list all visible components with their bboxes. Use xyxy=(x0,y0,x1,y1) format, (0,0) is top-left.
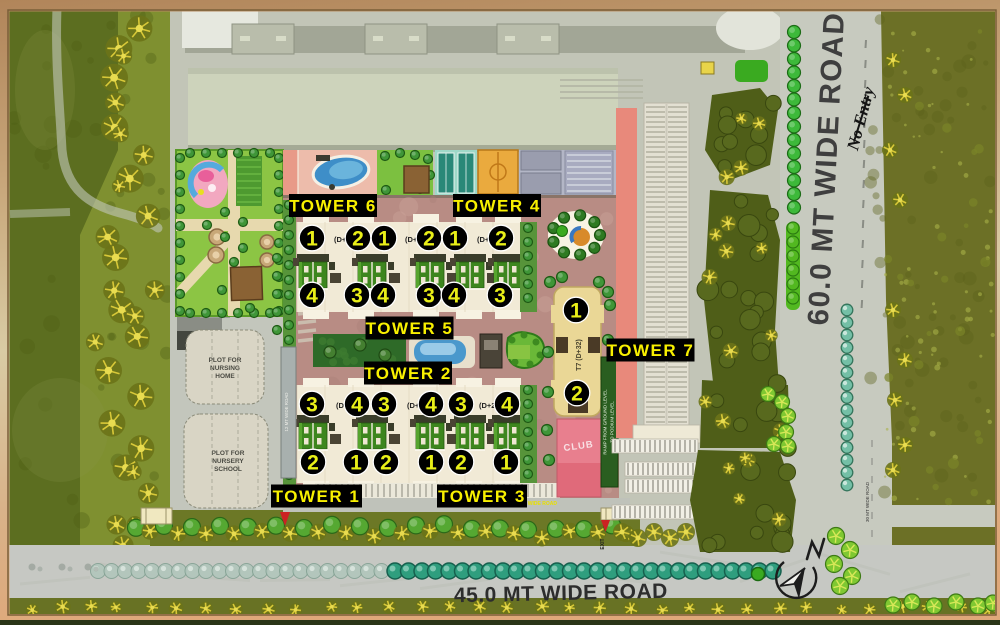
svg-text:TOWER 3: TOWER 3 xyxy=(438,487,526,506)
svg-text:TO PODIUM LEVEL: TO PODIUM LEVEL xyxy=(610,401,615,443)
svg-text:1: 1 xyxy=(500,452,512,475)
svg-text:TOWER 5: TOWER 5 xyxy=(366,319,454,338)
svg-text:2: 2 xyxy=(352,228,364,251)
svg-text:NURSERY: NURSERY xyxy=(212,458,244,465)
svg-text:3: 3 xyxy=(455,394,467,417)
svg-text:PLOT FOR: PLOT FOR xyxy=(209,357,242,364)
svg-text:4: 4 xyxy=(501,394,513,417)
svg-text:1: 1 xyxy=(449,228,461,251)
svg-text:TOWER 2: TOWER 2 xyxy=(364,364,452,383)
svg-text:1: 1 xyxy=(306,228,318,251)
svg-text:2: 2 xyxy=(307,452,319,475)
svg-text:1: 1 xyxy=(378,228,390,251)
svg-text:TOWER 4: TOWER 4 xyxy=(453,196,541,215)
svg-text:TOWER 7: TOWER 7 xyxy=(607,341,695,360)
svg-text:2: 2 xyxy=(571,383,583,406)
svg-text:12 MT WIDE ROAD: 12 MT WIDE ROAD xyxy=(284,393,289,432)
svg-text:NURSING: NURSING xyxy=(210,365,240,372)
svg-text:3: 3 xyxy=(423,285,435,308)
svg-text:TOWER 1: TOWER 1 xyxy=(273,487,361,506)
svg-text:2: 2 xyxy=(455,452,467,475)
svg-text:(D+2: (D+2 xyxy=(479,401,495,410)
svg-text:3: 3 xyxy=(306,394,318,417)
svg-text:1: 1 xyxy=(425,452,437,475)
svg-text:45.0 MT WIDE ROAD: 45.0 MT WIDE ROAD xyxy=(454,580,668,607)
svg-text:1: 1 xyxy=(350,452,362,475)
svg-text:HOME: HOME xyxy=(215,373,235,380)
svg-text:TOWER 6: TOWER 6 xyxy=(289,196,377,215)
svg-text:EXIT: EXIT xyxy=(600,538,606,549)
svg-text:4: 4 xyxy=(377,285,389,308)
svg-text:RAMP FROM GROUND LEVEL: RAMP FROM GROUND LEVEL xyxy=(603,389,608,455)
svg-text:2: 2 xyxy=(423,228,435,251)
svg-text:4: 4 xyxy=(448,285,460,308)
svg-text:PLOT FOR: PLOT FOR xyxy=(212,450,245,457)
svg-text:T7 (D+32): T7 (D+32) xyxy=(576,339,583,371)
svg-text:2: 2 xyxy=(495,228,507,251)
svg-text:30 MT WIDE ROAD: 30 MT WIDE ROAD xyxy=(865,481,870,522)
svg-text:4: 4 xyxy=(425,394,437,417)
svg-text:1: 1 xyxy=(570,300,582,323)
svg-text:3: 3 xyxy=(494,285,506,308)
svg-text:4: 4 xyxy=(351,394,363,417)
svg-text:4: 4 xyxy=(306,285,318,308)
svg-text:3: 3 xyxy=(378,394,390,417)
svg-text:2: 2 xyxy=(380,452,392,475)
svg-text:3: 3 xyxy=(351,285,363,308)
